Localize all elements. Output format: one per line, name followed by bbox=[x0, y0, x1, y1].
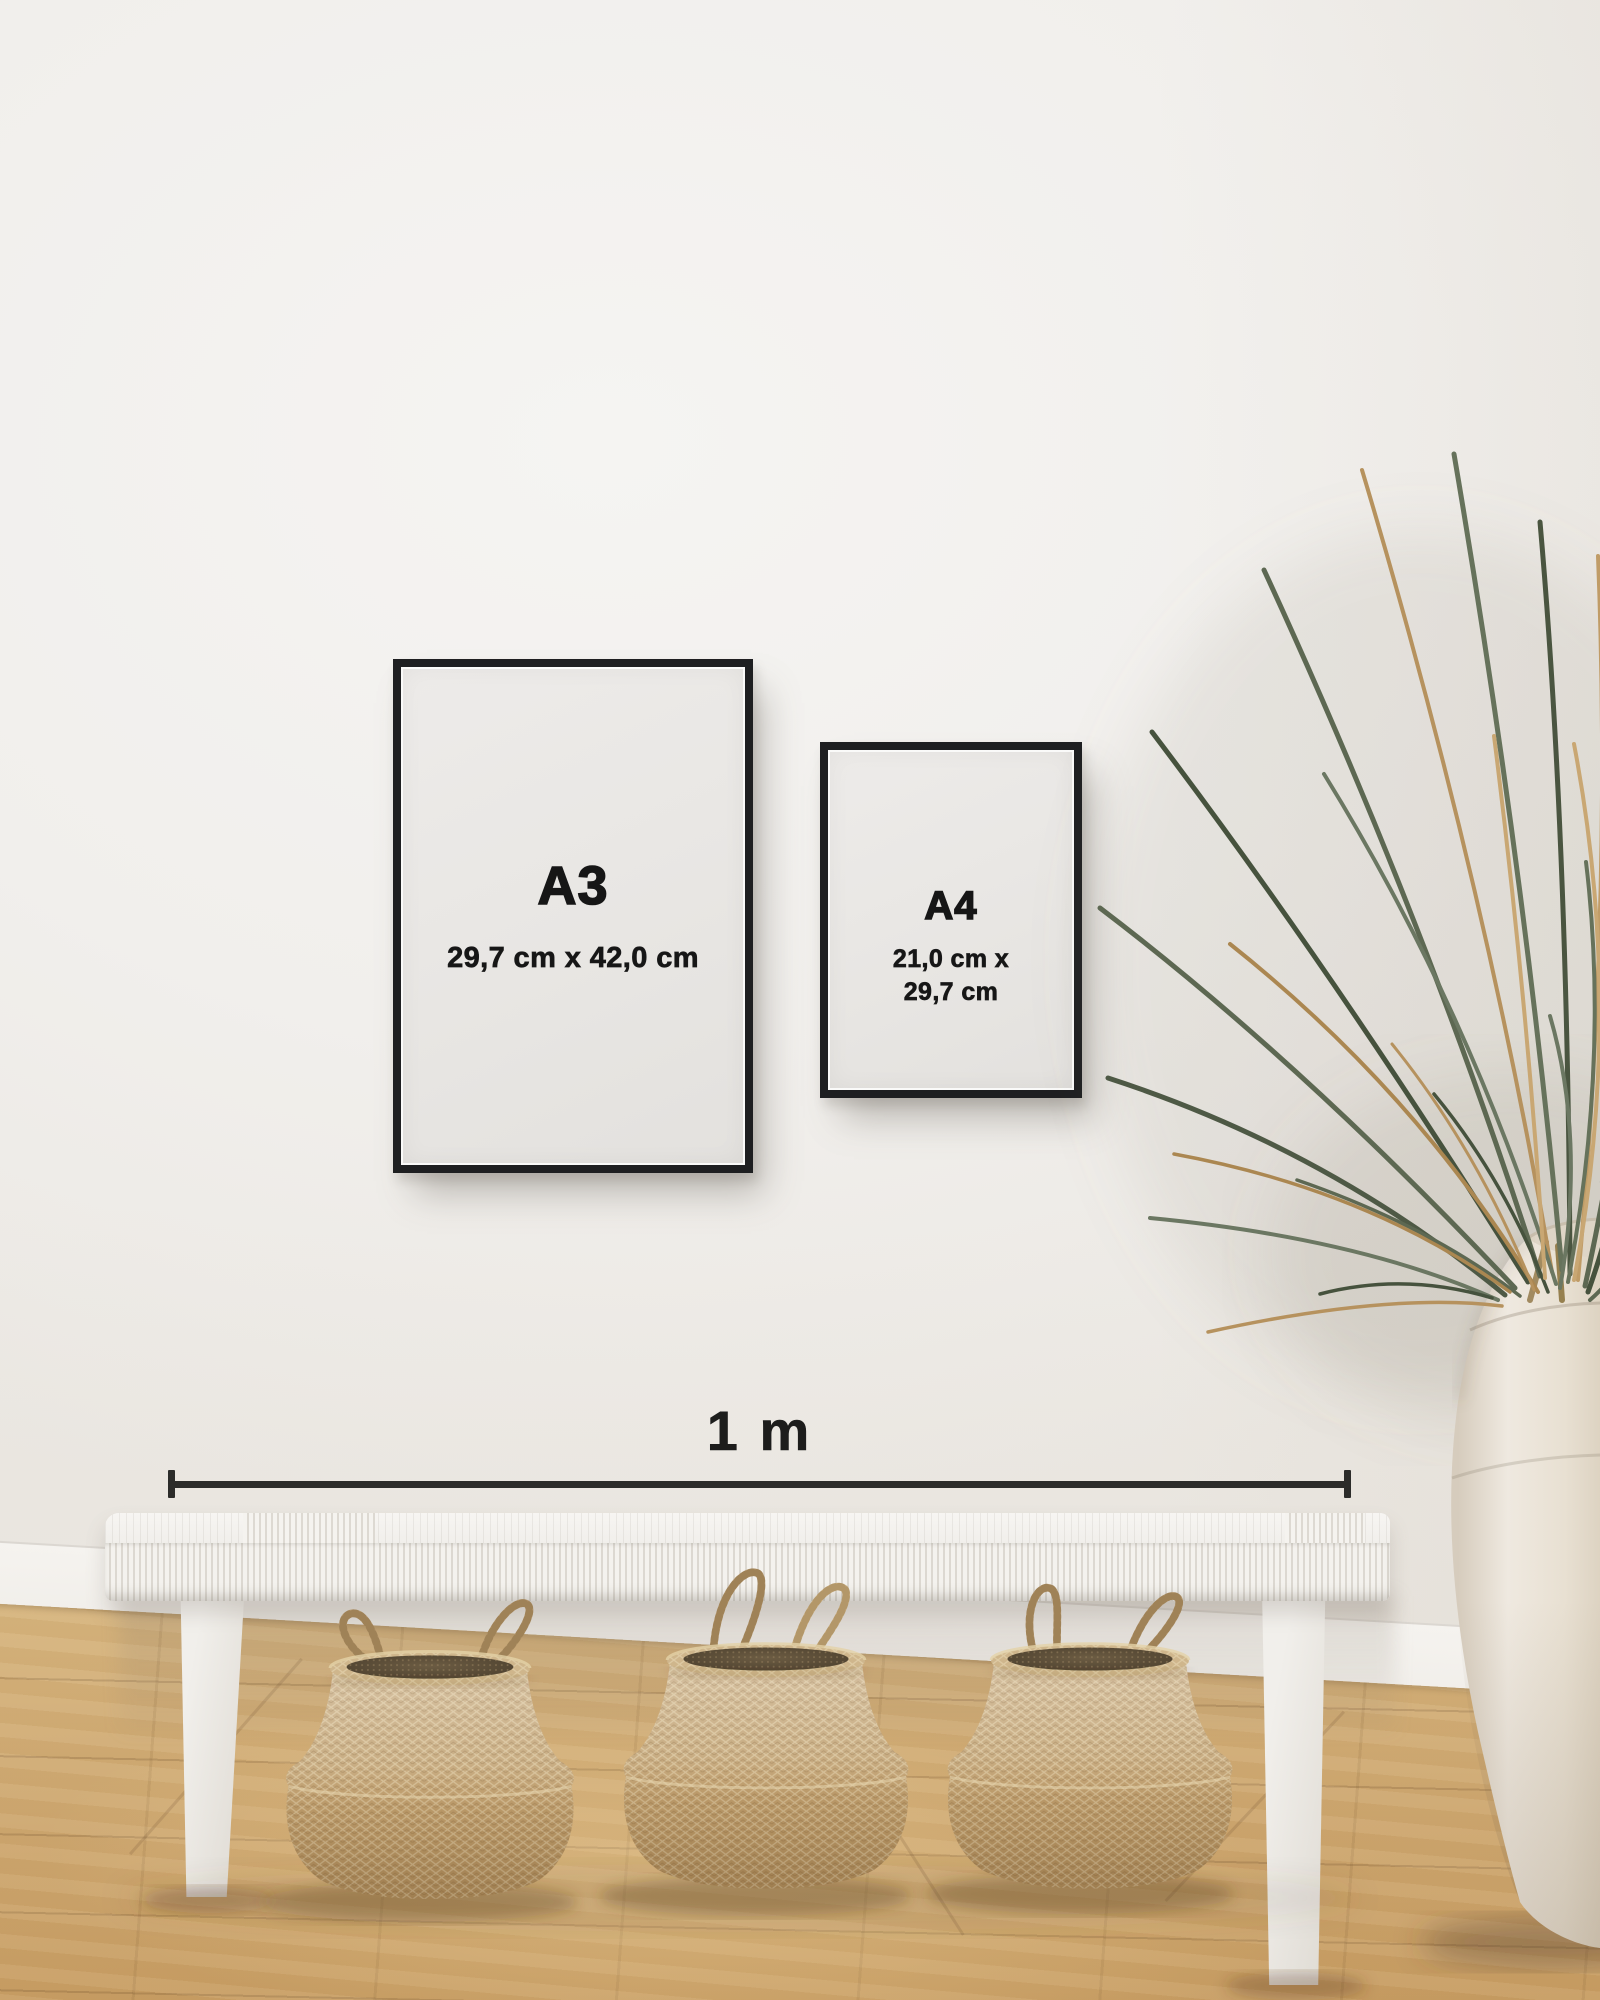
bench bbox=[105, 1513, 1390, 1601]
bench-weave-wrap-right bbox=[1285, 1513, 1365, 1543]
scale-ruler: 1 m bbox=[168, 1398, 1351, 1502]
bench-shadow-on-wall bbox=[120, 1596, 1395, 1731]
poster-paper-a4: A4 21,0 cm x 29,7 cm bbox=[830, 752, 1072, 1088]
bench-woven-apron bbox=[105, 1543, 1390, 1601]
frame-size-label: A3 bbox=[537, 855, 608, 917]
poster-frame-a4: A4 21,0 cm x 29,7 cm bbox=[820, 742, 1082, 1098]
poster-size-mockup-scene: A3 29,7 cm x 42,0 cm A4 21,0 cm x 29,7 c… bbox=[0, 0, 1600, 2000]
frame-size-label: A4 bbox=[924, 884, 977, 929]
bench-weave-wrap-left bbox=[243, 1513, 375, 1543]
frame-dimensions: 29,7 cm x 42,0 cm bbox=[447, 939, 699, 977]
scale-ruler-label: 1 m bbox=[707, 1398, 813, 1463]
scale-ruler-line bbox=[171, 1481, 1348, 1488]
scale-ruler-tick-left bbox=[168, 1470, 175, 1498]
poster-frame-a3: A3 29,7 cm x 42,0 cm bbox=[393, 659, 753, 1173]
scale-ruler-tick-right bbox=[1344, 1470, 1351, 1498]
frame-dimensions: 21,0 cm x 29,7 cm bbox=[893, 943, 1009, 1009]
poster-paper-a3: A3 29,7 cm x 42,0 cm bbox=[403, 669, 743, 1163]
bench-leg-right bbox=[1258, 1599, 1328, 1985]
